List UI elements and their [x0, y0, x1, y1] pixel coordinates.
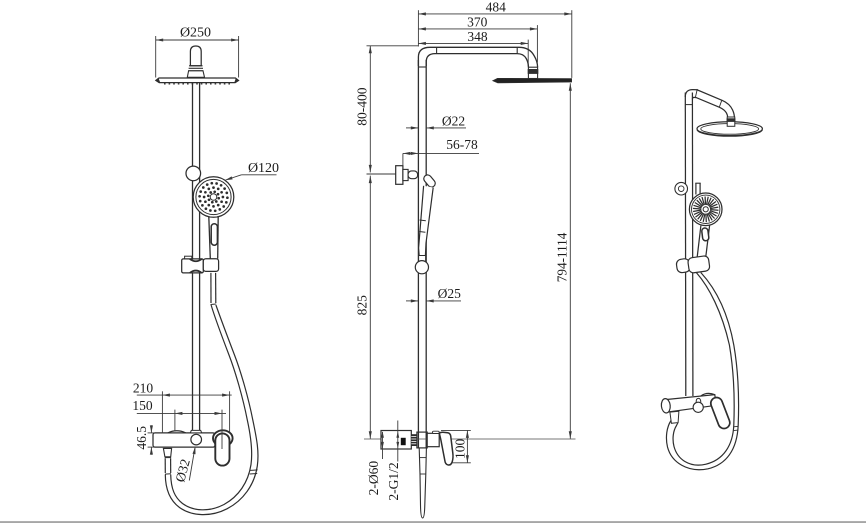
svg-text:210: 210: [133, 380, 154, 395]
svg-text:2-Ø60: 2-Ø60: [366, 461, 381, 496]
svg-text:Ø22: Ø22: [442, 113, 465, 128]
svg-text:80-400: 80-400: [355, 87, 370, 125]
svg-text:Ø250: Ø250: [180, 25, 211, 40]
svg-text:370: 370: [467, 14, 488, 29]
svg-text:348: 348: [467, 29, 488, 44]
svg-text:56-78: 56-78: [446, 137, 478, 152]
svg-text:100: 100: [452, 439, 467, 460]
svg-text:150: 150: [132, 398, 153, 413]
svg-text:2-G1/2: 2-G1/2: [386, 462, 401, 500]
svg-text:825: 825: [354, 295, 369, 316]
svg-text:794-1114: 794-1114: [554, 232, 569, 282]
svg-text:46.5: 46.5: [134, 426, 149, 450]
svg-text:Ø120: Ø120: [248, 161, 279, 176]
svg-text:Ø25: Ø25: [438, 286, 461, 301]
svg-text:484: 484: [486, 0, 507, 14]
